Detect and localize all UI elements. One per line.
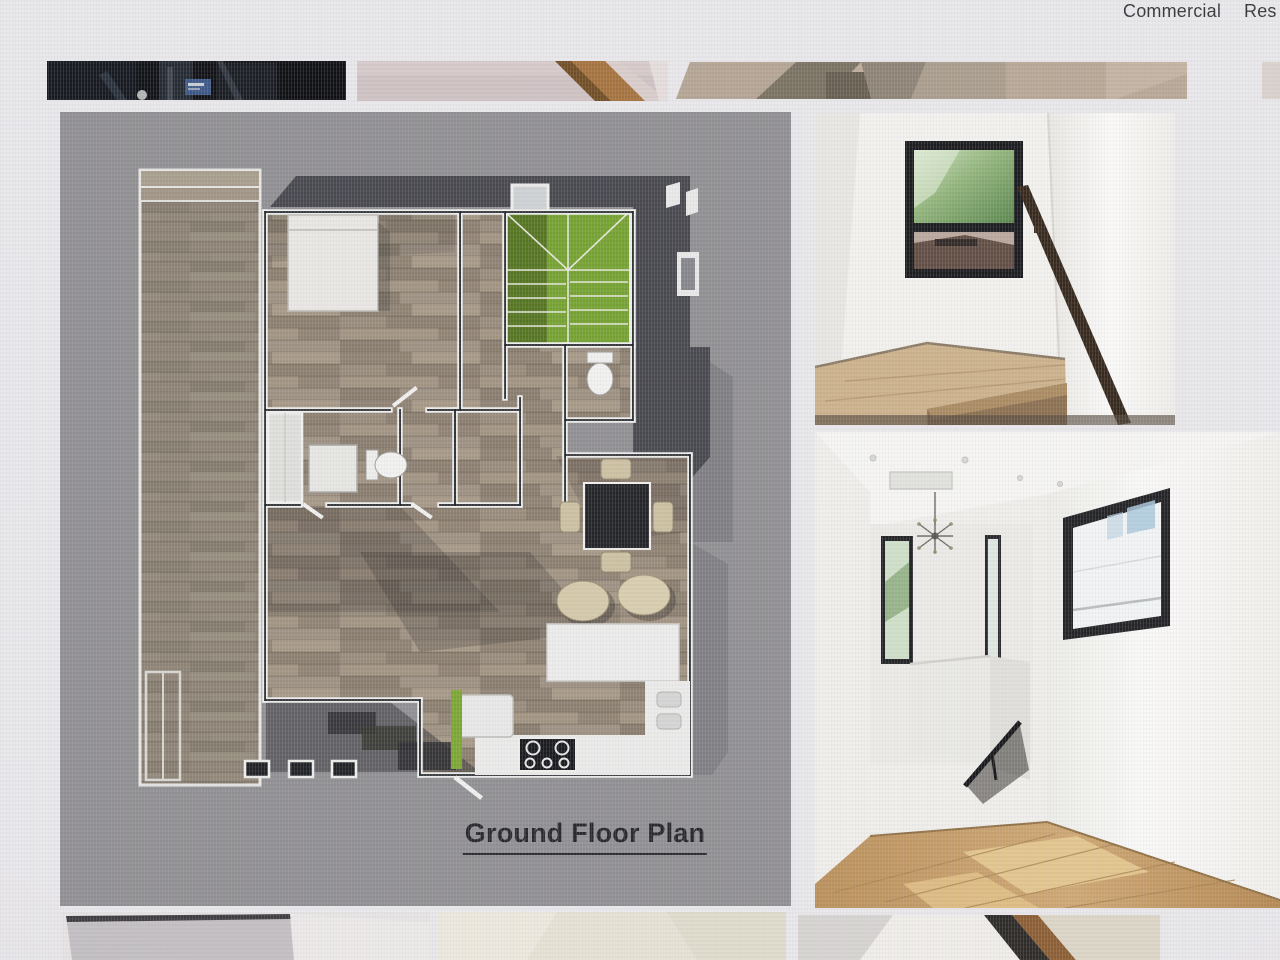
stairwell-photo-art <box>815 113 1175 425</box>
nav-item-residential[interactable]: Res <box>1244 1 1277 22</box>
wall-corner-art <box>62 912 430 960</box>
stair-beam-art <box>798 915 1160 960</box>
stairwell-landing-photo[interactable] <box>815 113 1175 425</box>
floor-plan-caption: Ground Floor Plan <box>463 818 707 855</box>
bottom-thumbnail-wall-corner[interactable] <box>62 912 430 960</box>
cream-interior-art <box>437 912 786 960</box>
top-thumbnail-stair-corner[interactable] <box>357 61 668 101</box>
top-thumbnail-dark-interior[interactable] <box>47 61 346 100</box>
stair-strip-art <box>676 62 1187 99</box>
nav-item-commercial[interactable]: Commercial <box>1123 1 1221 22</box>
browser-page: Commercial Res <box>0 0 1280 960</box>
stair-corner-art <box>357 61 668 101</box>
hallway-photo-art <box>815 432 1280 908</box>
top-navigation: Commercial Res <box>1123 1 1280 22</box>
floor-plan-image[interactable]: Ground Floor Plan <box>60 112 791 906</box>
stairwell-window <box>905 141 1023 278</box>
dark-interior-art <box>47 61 346 100</box>
top-thumbnail-edge-fragment[interactable] <box>1262 62 1280 99</box>
top-thumbnail-stair-strip[interactable] <box>676 62 1187 99</box>
bottom-thumbnail-cream-interior[interactable] <box>437 912 786 960</box>
plan-deck <box>140 170 260 785</box>
floor-plan-drawing <box>60 112 791 906</box>
bottom-thumbnail-stair-beam[interactable] <box>798 915 1160 960</box>
upstairs-hallway-photo[interactable] <box>815 432 1280 908</box>
